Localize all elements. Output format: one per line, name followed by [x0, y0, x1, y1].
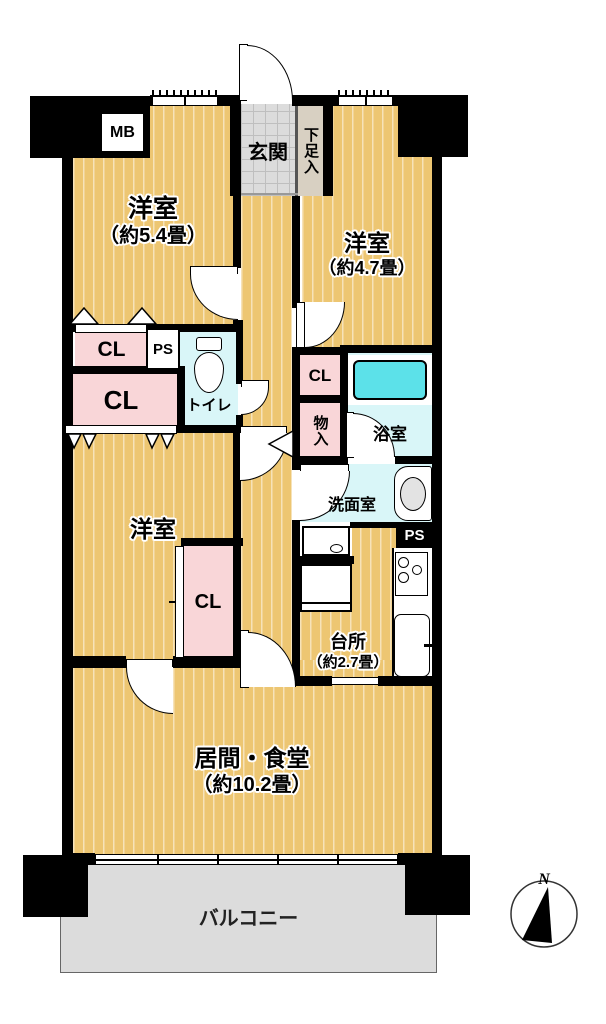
shoe-storage-label: 下足入: [298, 112, 323, 190]
entrance-label: 玄関: [241, 136, 295, 164]
closet-w-fold-tick: [169, 601, 176, 603]
bathtub: [353, 360, 427, 400]
kitchen-name: 台所: [330, 632, 366, 654]
floor-plan: MB 玄関 下足入 洋室 （約5.4畳） 洋室 （約4.7畳） CL PS トイ…: [0, 0, 606, 1024]
entrance-left-wall: [230, 95, 241, 196]
toilet-right-wall-upper: [236, 330, 243, 384]
closet-fold-triangle-down-2: [81, 433, 98, 450]
stove-burner-2: [412, 565, 422, 575]
closet-fold-triangle-down-4: [159, 433, 176, 450]
storage-opening-triangle: [264, 430, 294, 458]
kitchen-bottom-wall-right: [378, 676, 433, 686]
toilet-label: トイレ: [180, 393, 238, 415]
bedroom-nw-size: （約5.4畳）: [99, 224, 207, 248]
bath-top-wall: [340, 345, 432, 353]
bath-bottom-wall-left: [292, 456, 348, 464]
window-ne-tick: [365, 96, 367, 106]
bedroom-w-label: 洋室: [73, 513, 233, 541]
closet-nw-lower-label: CL: [65, 374, 177, 427]
pipe-space-lower-label: PS: [396, 522, 433, 548]
bedroom-ne-size: （約4.7畳）: [318, 258, 415, 280]
pillar-ne: [398, 95, 468, 157]
washroom-bottom-wall: [350, 522, 396, 528]
shoe-right-wall: [323, 95, 333, 196]
entrance-step-line: [241, 193, 298, 195]
bedroom-ne-left-wall: [292, 196, 300, 308]
window-nw-tick: [184, 96, 186, 106]
stove-burner-3: [398, 572, 409, 583]
kitchen-bottom-wall-left: [294, 676, 332, 686]
compass-north-label: N: [532, 870, 556, 890]
window-south-tick-3: [277, 854, 279, 865]
living-dining-label: 居間・食堂 （約10.2畳）: [72, 740, 432, 802]
corridor-left-wall-upper: [233, 196, 241, 268]
window-south-midline: [96, 859, 397, 861]
right-wall: [432, 155, 442, 857]
kitchen-opening: [332, 677, 378, 685]
window-south-tick-4: [337, 854, 339, 865]
closet-fold-triangle-up-1: [68, 306, 100, 326]
washing-machine-pan: [302, 526, 350, 556]
entrance-door-swing: [247, 45, 293, 101]
fridge-space-line: [302, 602, 350, 604]
bedroom-w-bottom-wall-left: [62, 656, 126, 668]
closet-ne-label: CL: [300, 355, 340, 397]
washer-drain: [330, 544, 343, 553]
living-dining-size: （約10.2畳）: [193, 773, 312, 797]
toilet-bottom-wall: [177, 425, 243, 433]
fridge-space: [300, 564, 352, 612]
balcony-label: バルコニー: [60, 903, 437, 929]
kitchen-size: （約2.7畳）: [308, 654, 389, 672]
window-south-tick-2: [217, 854, 219, 865]
bedroom-nw-name: 洋室: [128, 194, 178, 224]
bathroom-label: 浴室: [348, 420, 432, 444]
closet-fold-triangle-up-2: [126, 306, 158, 326]
bedroom-ne-door-leaf: [296, 302, 305, 348]
window-south-tick-1: [157, 854, 159, 865]
kitchen-label: 台所 （約2.7畳）: [293, 628, 403, 676]
closet-w-label: CL: [183, 546, 233, 658]
bedroom-nw-label: 洋室 （約5.4畳）: [73, 190, 233, 252]
pipe-space-upper-label: PS: [146, 328, 180, 370]
living-dining-name: 居間・食堂: [195, 745, 310, 773]
washroom-label: 洗面室: [300, 492, 404, 514]
stove-burner-1: [398, 557, 409, 568]
storage-label: 物入: [300, 407, 340, 455]
toilet-tank: [196, 337, 222, 351]
closet-nw-upper-label: CL: [75, 332, 148, 368]
meter-box-label: MB: [100, 112, 145, 153]
bedroom-ne-name: 洋室: [344, 230, 390, 258]
bath-bottom-wall-right: [395, 456, 432, 464]
washer-nook-bottom-wall: [296, 556, 354, 564]
bedroom-ne-label: 洋室 （約4.7畳）: [302, 226, 432, 284]
